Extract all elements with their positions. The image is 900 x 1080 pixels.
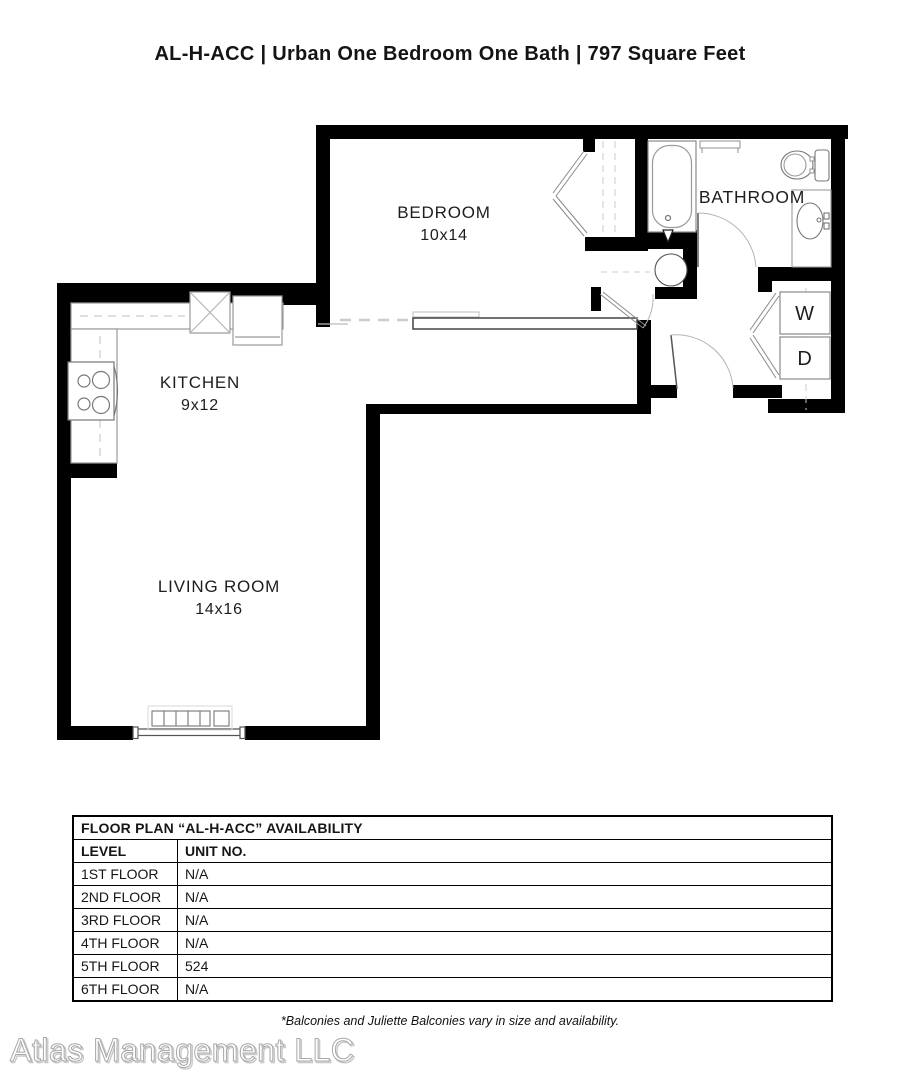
table-row: 6TH FLOOR N/A [74,978,831,1000]
bedroom-label: BEDROOM [397,203,490,222]
living-room-label: LIVING ROOM [158,577,280,596]
table-title: FLOOR PLAN “AL-H-ACC” AVAILABILITY [74,817,363,839]
level-cell: 4TH FLOOR [74,932,178,954]
bedroom-dims: 10x14 [420,227,468,244]
wall-left [57,283,71,740]
wall-hall-right [637,320,651,413]
wall-hall-bottom [366,404,651,414]
floorplan-drawing: BEDROOM 10x14 BATHROOM KITCHEN 9x12 LIVI… [0,0,900,800]
kitchen-label: KITCHEN [160,373,240,392]
wall-wd-jamb [758,281,772,292]
water-heater [655,254,687,286]
bedroom-closet [553,141,615,236]
company-watermark: Atlas Management LLC Atlas Management LL… [6,1024,426,1076]
toilet [781,150,829,181]
column-header-unit: UNIT NO. [178,840,831,862]
unit-cell: N/A [178,932,831,954]
bathroom-door [698,213,756,267]
availability-table: FLOOR PLAN “AL-H-ACC” AVAILABILITY LEVEL… [72,815,833,1002]
closet-bifold-doors [553,151,587,236]
wall-living-right [366,404,380,740]
wall-whcloset-jamb [591,287,601,311]
level-cell: 6TH FLOOR [74,978,178,1000]
wall-junction [283,283,330,305]
unit-cell: N/A [178,863,831,885]
towel-shelf [700,141,740,153]
bedroom-sliding-door [318,312,637,329]
unit-cell: 524 [178,955,831,977]
dryer-label: D [797,348,812,370]
bathtub [648,141,696,232]
wall-top [316,125,848,139]
unit-cell: N/A [178,886,831,908]
level-cell: 3RD FLOOR [74,909,178,931]
entry-door [671,335,733,389]
window-gap [133,726,245,740]
table-row: 5TH FLOOR 524 [74,955,831,978]
wall-whcloset-bottom [655,287,697,299]
wall-entry-left [637,385,677,398]
table-row: 2ND FLOOR N/A [74,886,831,909]
table-row: 4TH FLOOR N/A [74,932,831,955]
wall-closet-jamb [583,139,595,152]
wall-bathroom-bottom [758,267,845,281]
wall-kitchen-stub [57,463,117,478]
wall-entry-right [733,385,782,398]
bathroom-label: BATHROOM [699,187,805,207]
unit-cell: N/A [178,978,831,1000]
table-header-row: LEVEL UNIT NO. [74,840,831,863]
stove [68,362,118,420]
living-room-dims: 14x16 [195,601,243,618]
unit-cell: N/A [178,909,831,931]
table-row: 1ST FLOOR N/A [74,863,831,886]
column-header-level: LEVEL [74,840,178,862]
wall-closet-bottom [585,237,648,251]
watermark-text: Atlas Management LLC [10,1032,354,1068]
level-cell: 5TH FLOOR [74,955,178,977]
sliding-door-panel [413,318,637,329]
refrigerator [233,296,282,345]
room-labels: BEDROOM 10x14 BATHROOM KITCHEN 9x12 LIVI… [158,187,815,618]
level-cell: 2ND FLOOR [74,886,178,908]
floorplan-flyer: AL-H-ACC | Urban One Bedroom One Bath | … [0,0,900,1080]
level-cell: 1ST FLOOR [74,863,178,885]
kitchen-dims: 9x12 [181,397,219,414]
washer-label: W [795,303,815,325]
table-title-row: FLOOR PLAN “AL-H-ACC” AVAILABILITY [74,817,831,840]
table-row: 3RD FLOOR N/A [74,909,831,932]
laundry-bifold-doors [750,293,779,378]
baseboard-heater [148,706,232,730]
